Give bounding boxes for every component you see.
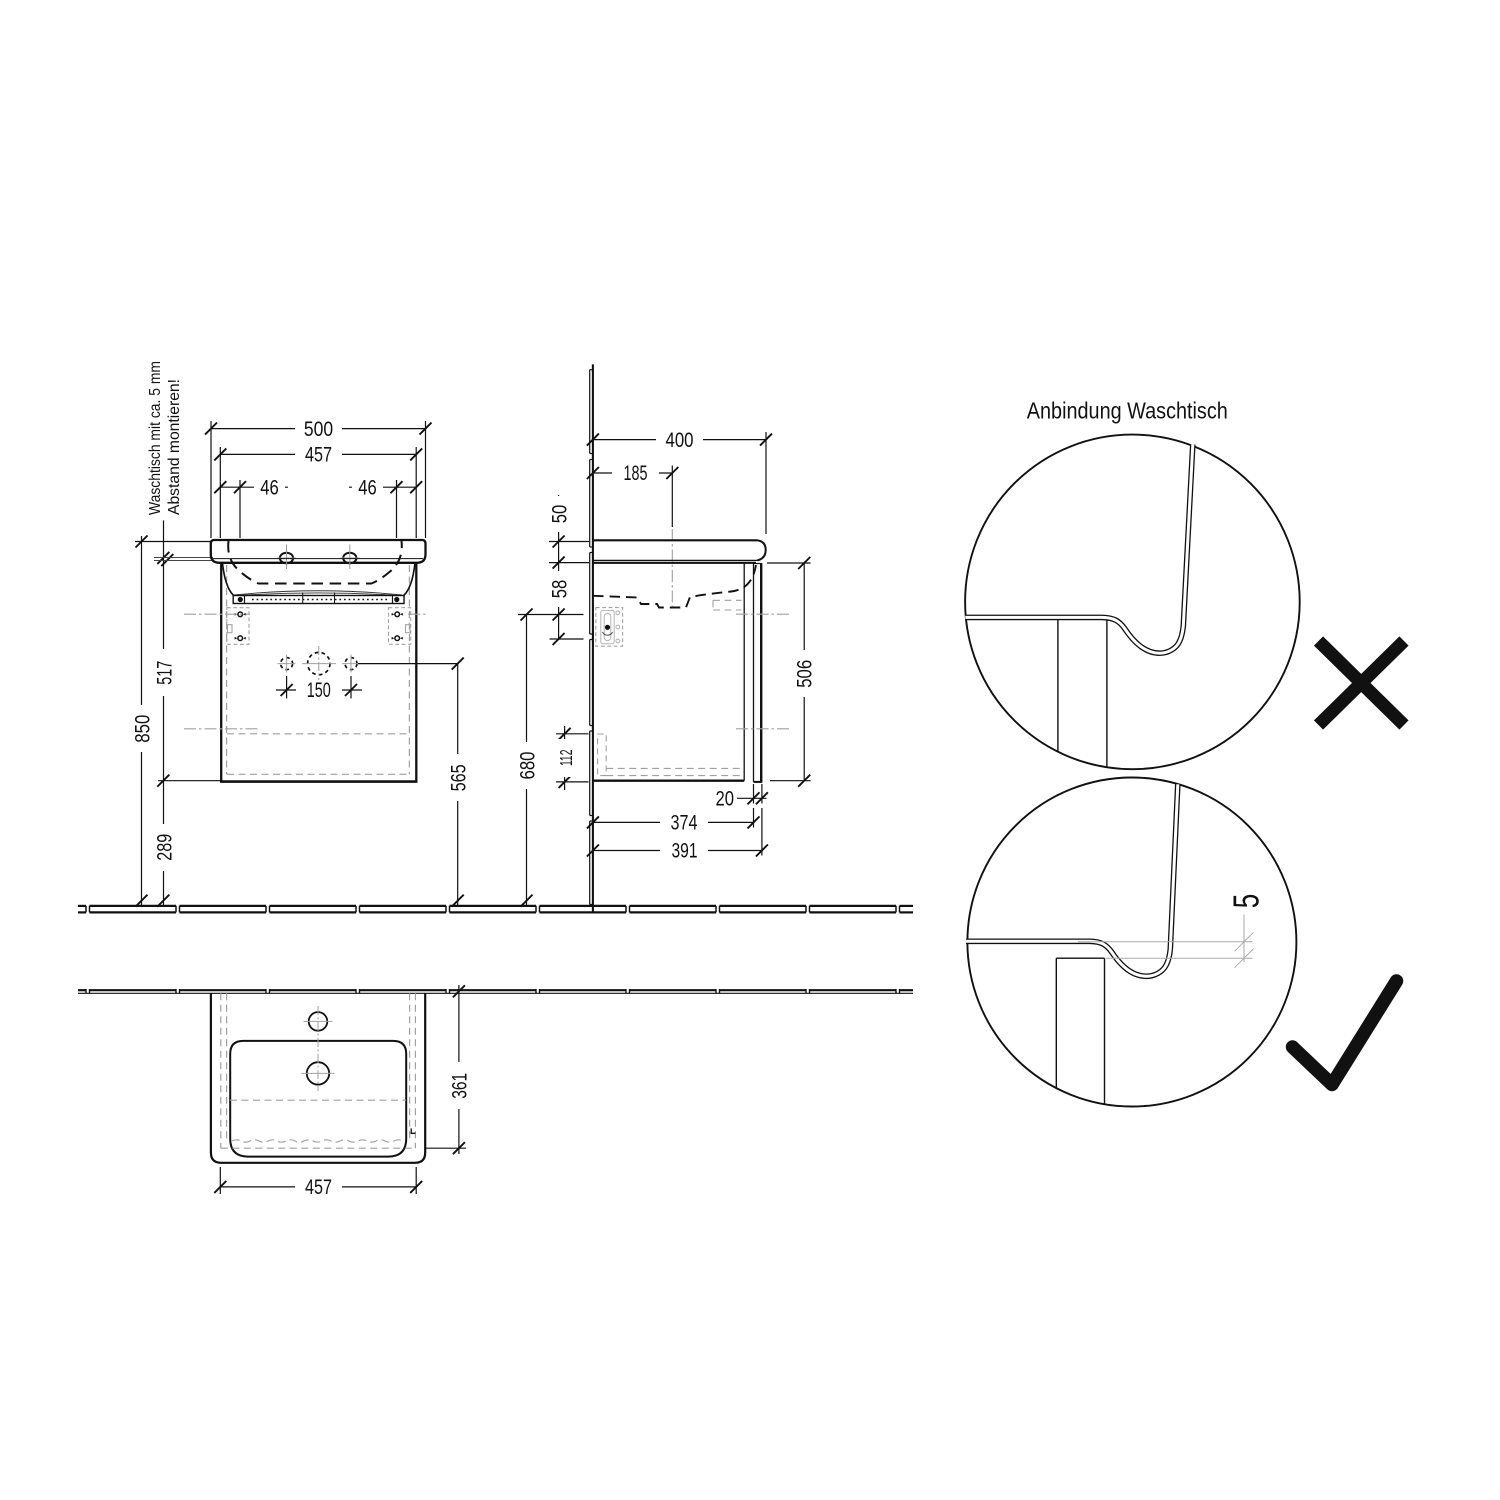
svg-text:289: 289 [152,834,176,861]
svg-text:457: 457 [305,443,332,467]
svg-text:Abstand montieren!: Abstand montieren! [166,379,183,515]
svg-text:391: 391 [672,839,698,863]
svg-text:Anbindung Waschtisch: Anbindung Waschtisch [1027,398,1228,424]
svg-text:20: 20 [716,787,735,810]
svg-text:374: 374 [671,811,698,835]
svg-text:46: 46 [358,475,377,499]
svg-text:5: 5 [1226,894,1267,909]
svg-text:58: 58 [548,580,572,599]
svg-text:565: 565 [447,764,471,791]
svg-text:Waschtisch mit ca. 5 mm: Waschtisch mit ca. 5 mm [147,361,164,515]
svg-text:361: 361 [447,1073,471,1099]
svg-text:517: 517 [152,661,176,685]
svg-text:850: 850 [131,715,155,743]
svg-text:400: 400 [666,428,694,452]
svg-text:112: 112 [556,750,576,767]
svg-text:50: 50 [548,505,572,524]
svg-text:150: 150 [307,678,331,702]
svg-text:680: 680 [516,751,540,779]
svg-text:457: 457 [305,1175,332,1199]
svg-text:506: 506 [793,660,817,688]
svg-text:500: 500 [304,417,333,441]
svg-text:185: 185 [624,461,648,485]
svg-text:46: 46 [260,475,279,499]
